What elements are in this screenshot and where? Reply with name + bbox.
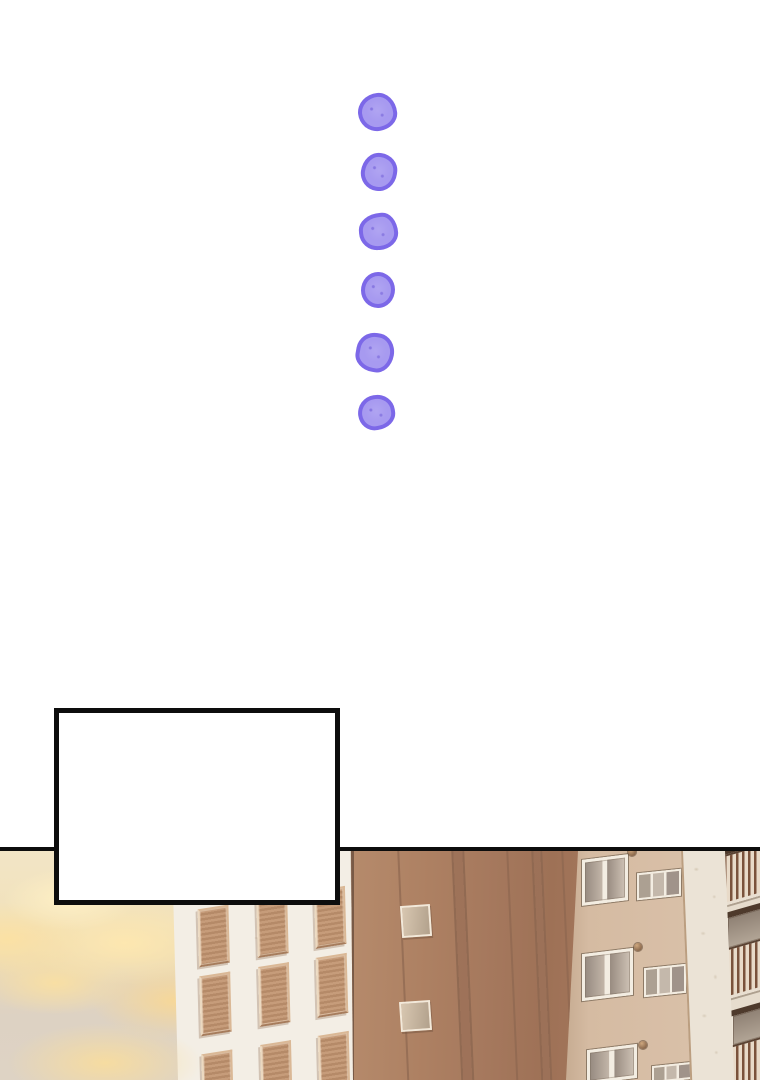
vent-circle bbox=[628, 848, 636, 856]
comic-page bbox=[0, 0, 760, 1080]
facade-seam bbox=[397, 847, 411, 1080]
vent-circle bbox=[639, 1041, 647, 1049]
double-window bbox=[582, 854, 628, 906]
speech-box bbox=[54, 708, 340, 905]
wide-window bbox=[644, 964, 686, 997]
shutter-window bbox=[201, 1049, 233, 1080]
wide-window bbox=[637, 869, 681, 901]
shutter-window bbox=[260, 1040, 292, 1080]
balcony-unit bbox=[730, 998, 760, 1080]
building-tan bbox=[560, 851, 692, 1080]
speech-blob bbox=[358, 212, 399, 252]
building-brown bbox=[348, 851, 578, 1080]
building-white-strip bbox=[681, 851, 734, 1080]
shutter-window bbox=[318, 1031, 350, 1080]
speech-blob bbox=[356, 393, 398, 433]
balcony-railing bbox=[724, 847, 760, 906]
speech-blob bbox=[359, 151, 400, 194]
facade-seam bbox=[451, 847, 476, 1080]
speech-blob bbox=[356, 91, 399, 133]
double-window bbox=[582, 948, 633, 1001]
vent-circle bbox=[634, 943, 642, 951]
facade-seam bbox=[506, 847, 520, 1080]
speech-blob bbox=[353, 330, 397, 375]
brown-building-window bbox=[399, 1000, 432, 1032]
balcony-unit bbox=[724, 847, 760, 906]
wide-window bbox=[652, 1062, 692, 1080]
speech-blob bbox=[361, 272, 395, 308]
shutter-window bbox=[198, 904, 230, 967]
shutter-window bbox=[316, 953, 348, 1018]
double-window bbox=[587, 1044, 637, 1080]
shutter-window bbox=[258, 962, 290, 1027]
facade-seam bbox=[531, 847, 554, 1080]
brown-building-window bbox=[400, 904, 432, 938]
shutter-window bbox=[199, 971, 231, 1036]
